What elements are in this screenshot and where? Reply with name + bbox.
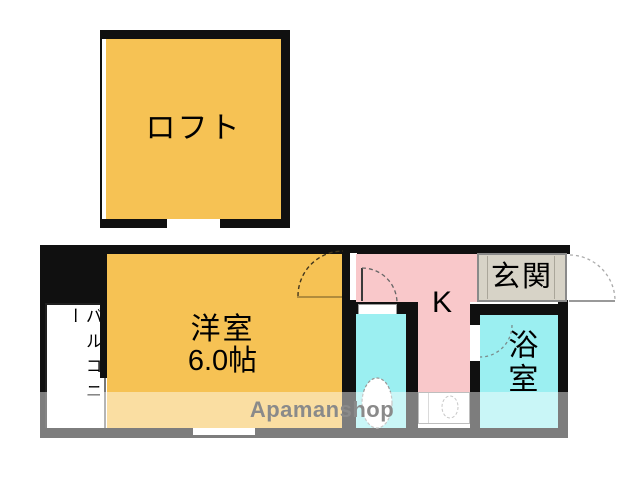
- loft-left-wall-line: [100, 30, 102, 228]
- kitchen-label: K: [420, 287, 464, 319]
- bath-top-wall: [470, 304, 568, 315]
- western-room-label-block: 洋室 6.0帖: [130, 314, 315, 378]
- loft-top-wall: [100, 30, 290, 39]
- loft-label: ロフト: [106, 113, 281, 145]
- entry-door-arc: [570, 255, 615, 300]
- entrance-label: 玄関: [481, 262, 563, 293]
- corner-wall-block: [40, 245, 108, 305]
- western-room-label: 洋室: [130, 314, 315, 346]
- loft-ladder-opening: [167, 219, 220, 228]
- watermark-text: Apamanshop: [227, 398, 417, 422]
- bathroom-label: 浴室: [503, 329, 535, 399]
- western-room-size: 6.0帖: [130, 346, 315, 377]
- floor-plan: ロフト バルコニー 洋室 6.0帖 K 浴室 玄関: [0, 0, 640, 479]
- bath-door-opening: [470, 325, 480, 361]
- loft-right-wall: [281, 30, 290, 228]
